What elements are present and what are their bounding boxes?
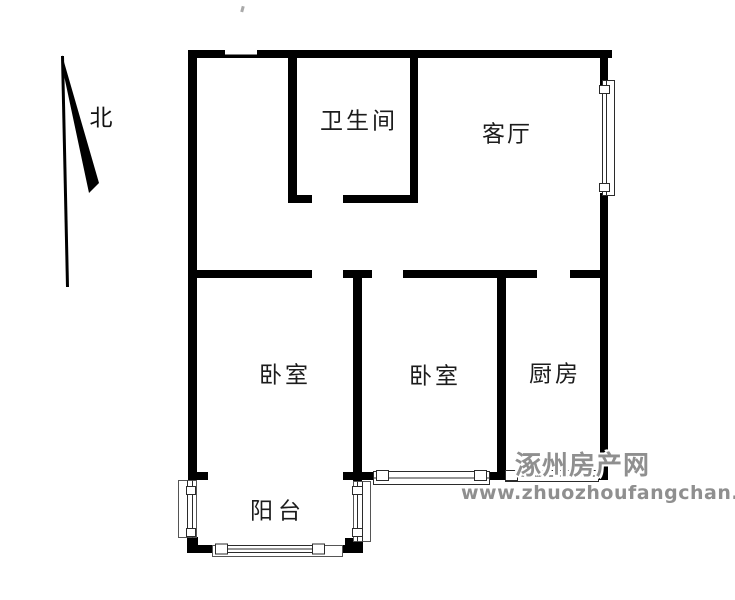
room-label-bedroom-middle: 卧室 bbox=[409, 366, 461, 389]
north-arrow-shaft bbox=[63, 56, 68, 287]
north-arrow bbox=[62, 55, 99, 287]
window-cap bbox=[313, 544, 325, 554]
wall-bathroom-left bbox=[288, 50, 297, 203]
wall-left bbox=[188, 50, 197, 480]
room-label-kitchen: 厨房 bbox=[529, 364, 581, 387]
window-cap bbox=[216, 544, 228, 554]
window-balcony-east bbox=[353, 482, 371, 542]
entry-door-notch bbox=[225, 50, 257, 55]
window-cap bbox=[187, 529, 196, 537]
room-label-balcony: 阳台 bbox=[250, 501, 306, 524]
floor-plan: 卫生间 客厅 卧室 卧室 厨房 阳台 北 涿州房产网 www.zhuozhouf… bbox=[0, 0, 735, 600]
window-cap bbox=[187, 487, 196, 495]
room-label-living-room: 客厅 bbox=[482, 124, 532, 147]
room-label-bathroom: 卫生间 bbox=[320, 111, 398, 134]
wall-bedroom-divider bbox=[353, 270, 362, 481]
wall-middle-c bbox=[403, 270, 537, 278]
window-living-room-east bbox=[600, 81, 615, 196]
north-label: 北 bbox=[90, 108, 113, 131]
wall-middle-a bbox=[188, 270, 312, 278]
window-cap bbox=[475, 471, 487, 481]
window-cap bbox=[353, 529, 363, 537]
window-cap bbox=[600, 86, 610, 94]
wall-bathroom-bottom bbox=[343, 195, 418, 203]
wall-bathroom-door-jamb bbox=[288, 195, 312, 203]
wall-bottom-middle bbox=[343, 472, 378, 480]
window-cap bbox=[377, 471, 389, 481]
window-cap bbox=[600, 184, 610, 192]
wall-middle-d bbox=[570, 270, 608, 278]
watermark-site-name: 涿州房产网 bbox=[515, 453, 650, 479]
window-frame bbox=[603, 81, 615, 196]
watermark-url: www.zhuozhoufangchan.com bbox=[461, 484, 735, 503]
wall-right-lower bbox=[600, 193, 608, 475]
window-balcony-west bbox=[179, 481, 197, 538]
wall-bottom-left-stub bbox=[188, 472, 208, 480]
wall-kitchen-divider bbox=[497, 270, 506, 479]
wall-bathroom-right bbox=[410, 50, 418, 203]
room-label-bedroom-west: 卧室 bbox=[259, 365, 311, 388]
window-balcony-south bbox=[213, 544, 343, 557]
window-cap bbox=[353, 487, 363, 495]
floor-plan-drawing bbox=[0, 0, 735, 600]
stray-mark bbox=[240, 6, 244, 13]
outer-walls bbox=[188, 50, 612, 480]
